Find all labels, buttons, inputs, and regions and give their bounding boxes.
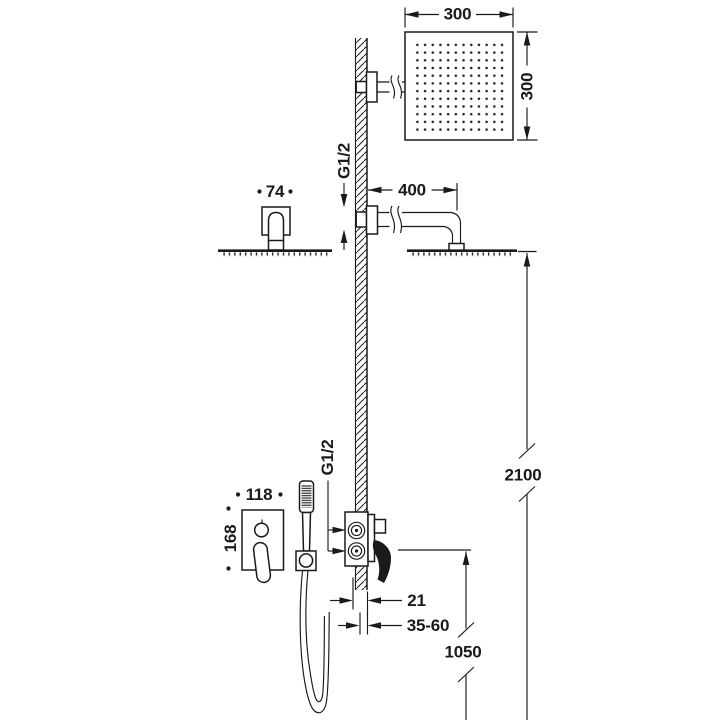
wall-section	[356, 38, 368, 590]
dim-arm-thread-label: G1/2	[335, 143, 354, 179]
shower-arm-side	[356, 206, 464, 251]
dim-head-width-label: 300	[444, 5, 472, 24]
mixer-valve-side	[345, 512, 391, 583]
dim-head-height: 300	[517, 32, 538, 140]
nozzle-grid	[414, 41, 506, 133]
dim-head-height-label: 300	[518, 73, 537, 101]
head-profile-side	[407, 251, 517, 257]
dim-valve-thread-label: G1/2	[318, 439, 337, 475]
dim-trim-width-label: 118	[246, 485, 273, 504]
dim-valve-height-label: 1050	[444, 643, 481, 662]
rain-shower-head-front	[405, 32, 513, 140]
dim-head-width: 300	[405, 5, 513, 28]
hand-shower-handle	[303, 513, 311, 552]
dim-trim-height-label: 168	[221, 525, 240, 553]
dim-arm-thread: G1/2	[335, 143, 354, 250]
dim-rough-in-depth-label: 35-60	[407, 616, 449, 635]
hand-shower	[296, 481, 329, 713]
mixer-lever-side	[373, 540, 391, 583]
mixer-trim-front: 118 168	[221, 485, 284, 583]
dim-wall-offset-label: 21	[407, 591, 426, 610]
diagram-canvas: 300 300 G1/2 400	[0, 0, 720, 720]
shower-hose	[300, 571, 329, 713]
knob-side	[375, 520, 386, 534]
dim-arm-length: 400	[368, 180, 457, 210]
dim-escutcheon-width-label: 74	[266, 182, 285, 201]
dim-total-height: 2100	[504, 252, 541, 720]
dim-valve-thread: G1/2	[318, 439, 346, 554]
dim-rough-in-depth: 35-60	[338, 613, 449, 635]
arm-escutcheon-front: 74	[257, 182, 292, 250]
dim-valve-height: 1050	[398, 550, 482, 720]
dim-total-height-label: 2100	[504, 466, 541, 485]
head-profile-front	[218, 251, 332, 257]
dim-arm-length-label: 400	[398, 180, 426, 199]
